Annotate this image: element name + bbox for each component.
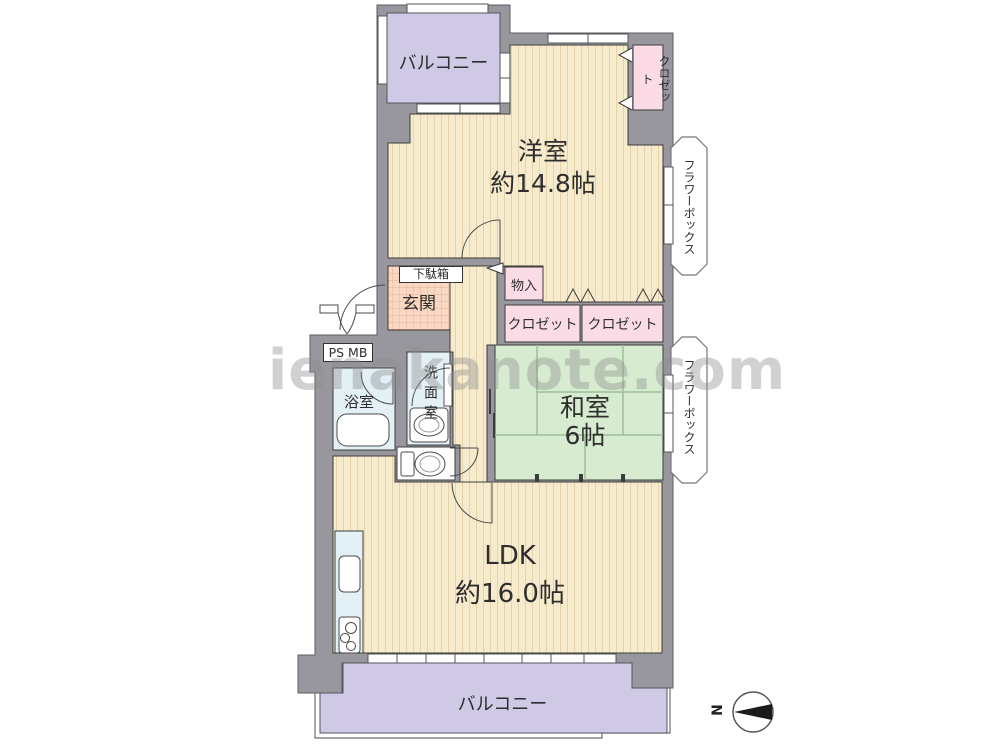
ldk-label: LDK bbox=[430, 541, 590, 571]
balcony-bottom-label: バルコニー bbox=[420, 690, 585, 716]
japanese-room-size: 6帖 bbox=[525, 416, 645, 452]
closet-right-label: クロゼット bbox=[582, 314, 663, 334]
washroom-label: 洗面室 bbox=[420, 355, 440, 435]
floorplan-svg bbox=[0, 0, 1000, 750]
entrance-label: 玄関 bbox=[390, 289, 448, 314]
western-room-label: 洋室 bbox=[453, 132, 633, 168]
flower-box-lower-label: フラワーボックス bbox=[681, 347, 698, 467]
washroom-door-opening bbox=[444, 364, 452, 406]
closet-top-label: クロゼット bbox=[639, 50, 673, 108]
compass-icon bbox=[733, 692, 773, 732]
compass-north-label: N bbox=[710, 704, 726, 716]
ldk-size: 約16.0帖 bbox=[430, 573, 590, 610]
balcony-top-label: バルコニー bbox=[387, 49, 500, 75]
floorplan-page: バルコニー クロゼット 洋室 約14.8帖 フラワーボックス 下駄箱 玄関 物入… bbox=[0, 0, 1000, 750]
bathtub bbox=[337, 414, 389, 446]
ldk-south-windows bbox=[368, 654, 616, 663]
closet-left-label: クロゼット bbox=[505, 314, 580, 334]
meter-box-doors bbox=[320, 305, 374, 334]
kitchen-sink bbox=[339, 556, 360, 592]
flower-box-upper-label: フラワーボックス bbox=[681, 147, 698, 267]
toilet-tank bbox=[401, 452, 414, 476]
western-room-size: 約14.8帖 bbox=[453, 164, 633, 200]
storage-label: 物入 bbox=[504, 275, 544, 294]
kitchen-stove bbox=[339, 617, 360, 653]
shoe-cabinet-label: 下駄箱 bbox=[399, 266, 463, 283]
bathroom-label: 浴室 bbox=[328, 391, 390, 412]
pipe-meter-box-label: PS MB bbox=[323, 343, 373, 362]
